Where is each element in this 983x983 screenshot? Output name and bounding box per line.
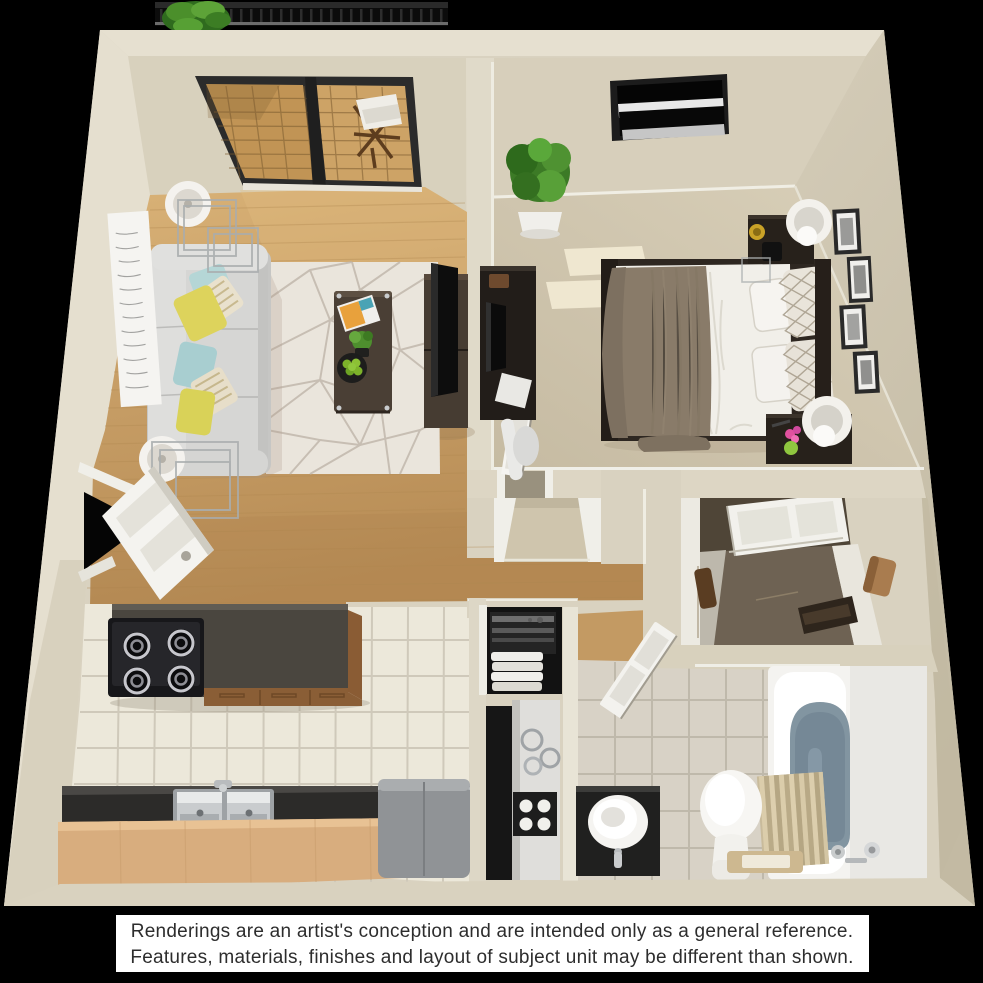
svg-text:Renderings are an artist's con: Renderings are an artist's conception an… [131,921,854,942]
svg-text:Features, materials, finishes: Features, materials, finishes and layout… [130,947,853,968]
